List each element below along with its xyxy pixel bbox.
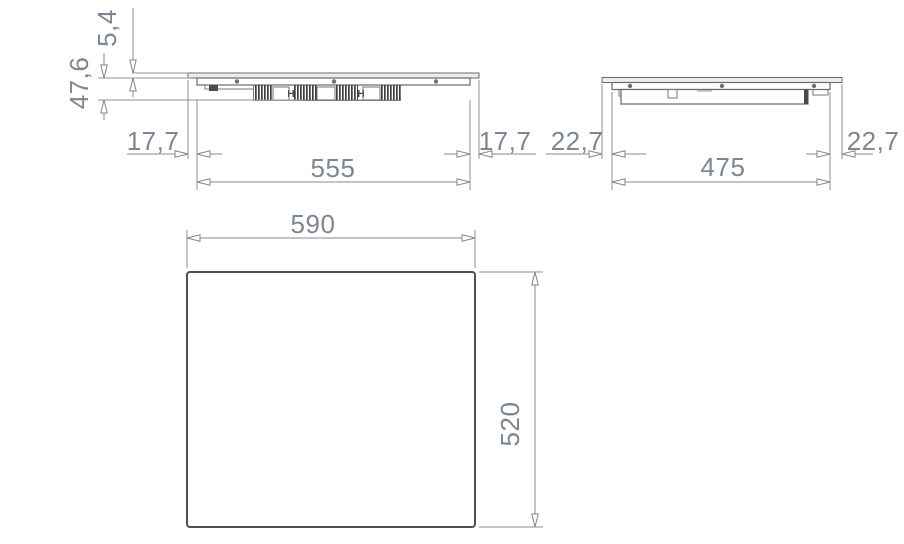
screw-icon <box>812 84 816 88</box>
fan-box <box>363 87 380 100</box>
arrowhead <box>612 151 625 157</box>
dimension-label-width: 590 <box>291 209 336 239</box>
clamp-mark: H <box>287 89 294 100</box>
glass-plate <box>602 78 842 83</box>
screw-icon <box>332 79 336 83</box>
fan-box <box>317 87 335 100</box>
dimension-label-right-overhang: 17,7 <box>479 126 532 156</box>
side-view-front: H H <box>188 73 479 100</box>
arrowhead <box>817 179 830 185</box>
screw-icon <box>434 79 438 83</box>
arrowhead <box>817 151 830 157</box>
housing-box <box>621 90 808 105</box>
arrowhead <box>532 514 538 527</box>
arrowhead <box>197 179 210 185</box>
cooktop-outline <box>187 272 475 527</box>
dimension-label-right-overhang: 22,7 <box>847 126 900 156</box>
dimension-label-body-width: 555 <box>311 153 356 183</box>
arrowhead <box>197 151 210 157</box>
arrowhead <box>457 179 470 185</box>
dimension-label-body-width: 475 <box>701 152 746 182</box>
heatsink-fins <box>335 85 358 100</box>
arrowhead <box>130 60 136 73</box>
arrowhead <box>101 100 107 113</box>
arrowhead <box>101 65 107 78</box>
heatsink-fins <box>294 85 317 100</box>
dimension-label-left-overhang: 17,7 <box>127 126 180 156</box>
arrowhead <box>457 151 470 157</box>
screw-icon <box>628 84 632 88</box>
arrowhead <box>462 235 475 241</box>
heatsink-fins <box>380 85 401 100</box>
glass-plate <box>188 73 479 78</box>
arrowhead <box>130 78 136 91</box>
mounting-tab <box>209 85 218 91</box>
arrowhead <box>532 272 538 285</box>
screw-icon <box>720 84 724 88</box>
clamp-mark: H <box>357 89 364 100</box>
side-view-profile <box>602 78 842 105</box>
dimension-label-body-depth: 47,6 <box>64 57 94 110</box>
arrowhead <box>612 179 625 185</box>
plan-view <box>187 272 475 527</box>
technical-drawing-page: H H 5,4 47,6 17,7 17,7 555 <box>0 0 904 544</box>
dimension-label-glass-height: 5,4 <box>92 9 122 47</box>
housing-right-edge <box>804 90 808 105</box>
right-bracket <box>813 90 828 96</box>
dimension-label-left-overhang: 22,7 <box>551 126 604 156</box>
cooktop-dimension-drawing: H H 5,4 47,6 17,7 17,7 555 <box>0 0 904 544</box>
arrowhead <box>187 235 200 241</box>
screw-icon <box>235 79 239 83</box>
dimension-label-depth: 520 <box>495 402 525 447</box>
heatsink-fins <box>253 85 273 100</box>
